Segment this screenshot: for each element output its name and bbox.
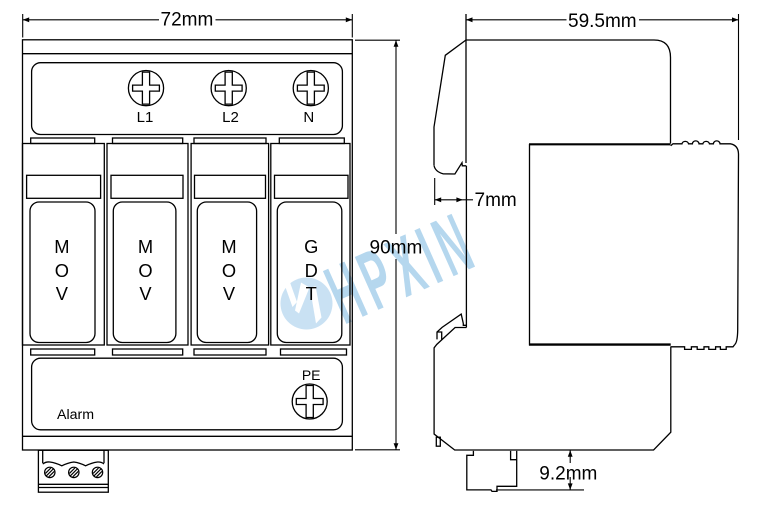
- svg-text:M: M: [54, 236, 69, 257]
- svg-text:T: T: [306, 283, 317, 304]
- svg-text:G: G: [304, 236, 318, 257]
- svg-text:9.2mm: 9.2mm: [539, 463, 597, 484]
- svg-text:HPXIN: HPXIN: [313, 193, 490, 341]
- svg-text:V: V: [56, 283, 69, 304]
- svg-text:N: N: [303, 109, 314, 126]
- svg-text:M: M: [138, 236, 153, 257]
- svg-text:V: V: [223, 283, 236, 304]
- svg-text:7mm: 7mm: [475, 190, 517, 211]
- svg-text:L1: L1: [137, 109, 154, 126]
- svg-text:L2: L2: [222, 109, 239, 126]
- svg-text:O: O: [55, 260, 69, 281]
- svg-text:59.5mm: 59.5mm: [568, 11, 637, 32]
- svg-text:O: O: [138, 260, 152, 281]
- svg-text:V: V: [139, 283, 152, 304]
- svg-text:Alarm: Alarm: [57, 407, 94, 423]
- svg-text:72mm: 72mm: [161, 9, 214, 30]
- svg-text:M: M: [221, 236, 236, 257]
- svg-text:PE: PE: [302, 367, 321, 383]
- svg-text:90mm: 90mm: [370, 237, 423, 258]
- svg-text:O: O: [222, 260, 236, 281]
- svg-text:D: D: [305, 260, 318, 281]
